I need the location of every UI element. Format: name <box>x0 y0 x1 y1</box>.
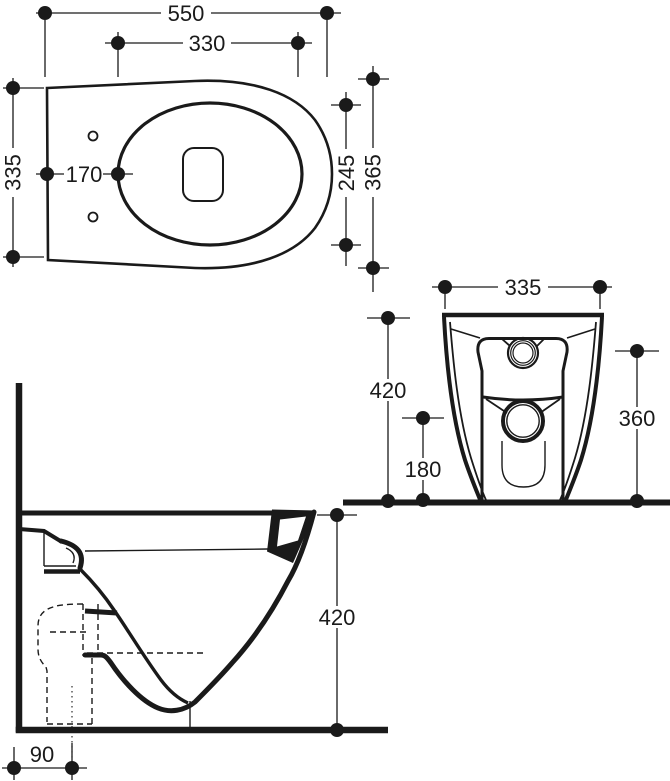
dim-endpoint-dot <box>111 167 125 181</box>
dim-label-overall-height-side: 420 <box>319 605 356 630</box>
seat-underside <box>19 529 62 542</box>
dim-endpoint-dot <box>339 98 353 112</box>
dim-endpoint-dot <box>339 238 353 252</box>
water-inlet-middle <box>511 341 536 366</box>
flush-outlet-top <box>183 148 223 201</box>
dim-endpoint-dot <box>366 261 380 275</box>
dim-label-bowl-outer-width: 365 <box>361 154 386 191</box>
dim-endpoint-dot <box>330 723 344 737</box>
shell-connector-right <box>567 329 595 338</box>
water-line <box>85 549 268 551</box>
dim-plan-330: 330 <box>105 31 312 77</box>
trapway-back-curve <box>80 569 188 703</box>
dim-label-overall-height: 420 <box>370 378 407 403</box>
dim-endpoint-dot <box>7 761 21 775</box>
rim-channel-inner <box>66 548 74 563</box>
dim-endpoint-dot <box>593 280 607 294</box>
dim-endpoint-dot <box>330 508 344 522</box>
bowl-rim <box>118 103 302 245</box>
dim-label-outlet-from-wall: 90 <box>30 742 54 767</box>
dim-endpoint-dot <box>6 250 20 264</box>
dim-side-420: 420 <box>313 508 361 737</box>
dim-label-back-width: 335 <box>1 154 26 191</box>
rim-channel-outer <box>61 541 81 568</box>
hidden-pipe-boot <box>38 604 92 724</box>
dim-endpoint-dot <box>416 411 430 425</box>
dim-endpoint-dot <box>65 761 79 775</box>
dim-plan-245: 245 <box>331 92 361 266</box>
dim-front-360: 360 <box>613 344 661 508</box>
dim-endpoint-dot <box>38 6 52 20</box>
side-view <box>16 383 388 765</box>
technical-drawing: 550 330 335 170 245 365 <box>0 0 670 781</box>
dim-endpoint-dot <box>320 6 334 20</box>
dim-label-overall-length: 550 <box>168 1 205 26</box>
seat-fixing-hole-upper <box>89 132 98 141</box>
dim-label-fixing-centres: 330 <box>189 31 226 56</box>
dim-label-bowl-inner-width: 245 <box>334 155 359 192</box>
dim-label-width: 335 <box>505 275 542 300</box>
dim-plan-365: 365 <box>358 66 389 292</box>
dim-front-180: 180 <box>399 411 447 507</box>
dim-endpoint-dot <box>381 494 395 508</box>
dim-front-335: 335 <box>432 275 612 309</box>
water-inlet-inner <box>513 343 533 363</box>
dim-endpoint-dot <box>630 344 644 358</box>
front-face-and-base <box>85 512 314 711</box>
trap-outlet-outer <box>503 401 543 441</box>
dim-endpoint-dot <box>366 72 380 86</box>
dim-label-trap-centre-height: 180 <box>405 457 442 482</box>
dim-side-90: 90 <box>2 742 87 780</box>
dim-plan-335: 335 <box>1 78 45 267</box>
dim-endpoint-dot <box>291 36 305 50</box>
seat-fixing-hole-lower <box>89 213 98 222</box>
trapway-lower <box>502 441 545 487</box>
dim-label-rear-to-bowl: 170 <box>66 162 103 187</box>
dim-endpoint-dot <box>6 81 20 95</box>
dim-endpoint-dot <box>40 167 54 181</box>
dim-endpoint-dot <box>111 36 125 50</box>
shell-connector-left <box>451 329 480 338</box>
dim-endpoint-dot <box>381 311 395 325</box>
dim-endpoint-dot <box>416 493 430 507</box>
dim-endpoint-dot <box>630 494 644 508</box>
trap-outlet-inner <box>507 405 539 437</box>
outlet-spigot-top <box>85 611 117 613</box>
dim-endpoint-dot <box>438 280 452 294</box>
dim-label-inlet-centre-height: 360 <box>619 406 656 431</box>
